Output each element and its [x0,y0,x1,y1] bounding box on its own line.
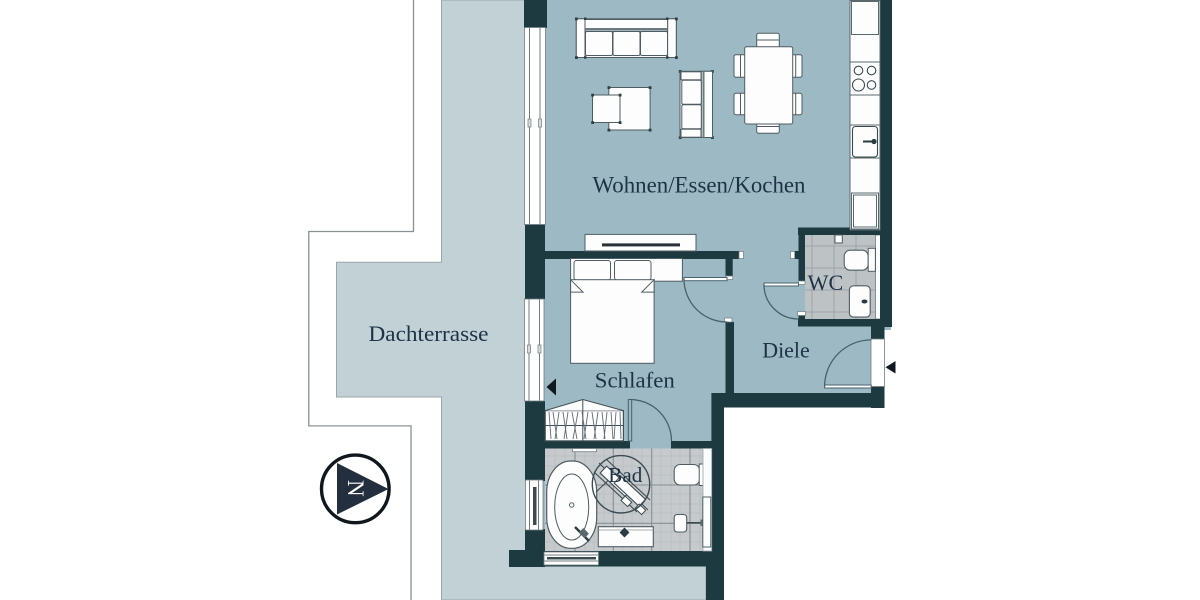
svg-text:Diele: Diele [762,338,810,363]
svg-text:Schlafen: Schlafen [595,368,675,393]
svg-text:Dachterrasse: Dachterrasse [369,321,489,346]
svg-text:Bad: Bad [608,463,642,487]
svg-text:Wohnen/Essen/Kochen: Wohnen/Essen/Kochen [593,173,806,198]
svg-text:N: N [343,480,368,497]
svg-text:WC: WC [808,270,844,295]
